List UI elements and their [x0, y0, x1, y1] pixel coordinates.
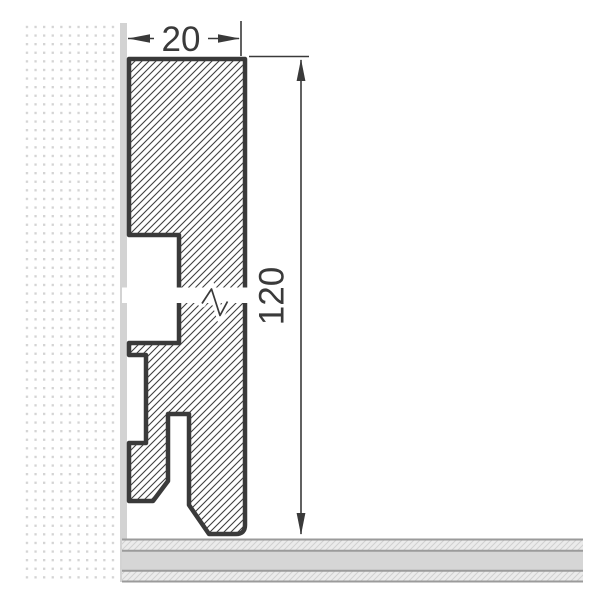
height-dimension-label: 120 — [253, 267, 292, 325]
height-dimension: 120 — [249, 57, 309, 536]
arrowhead-right-icon — [218, 34, 240, 43]
technical-drawing-canvas: 20 120 — [0, 0, 604, 604]
floor-layers — [122, 539, 583, 582]
width-dimension-label: 20 — [162, 20, 201, 59]
width-dimension: 20 — [128, 20, 241, 59]
profile-drawing: 20 120 — [0, 0, 604, 604]
floor-middle-band — [122, 552, 583, 571]
wall-dotted-surface — [25, 23, 120, 582]
break-gap — [122, 288, 253, 304]
arrowhead-left-icon — [128, 34, 150, 43]
arrowhead-up-icon — [297, 59, 306, 81]
wall — [25, 23, 127, 582]
arrowhead-down-icon — [297, 513, 306, 535]
